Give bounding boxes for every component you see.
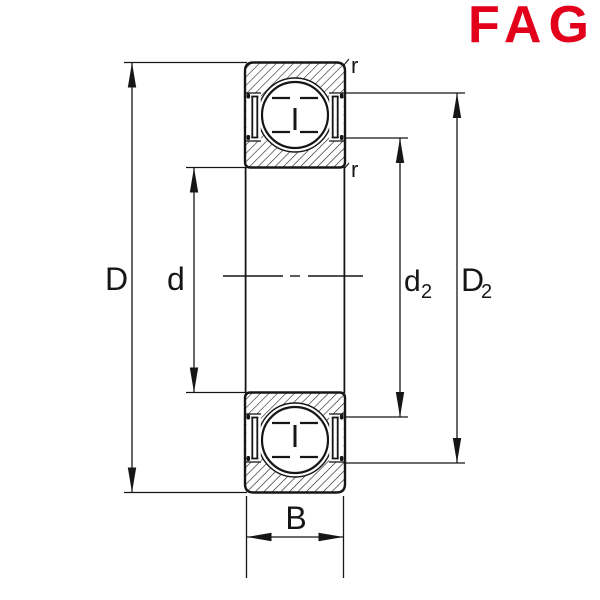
lower-right-shield-slot: [329, 414, 343, 462]
arrow-up-icon: [128, 63, 136, 88]
label-r-outer: r: [351, 53, 358, 78]
arrow-down-icon: [128, 468, 136, 493]
fag-logo: FAG: [468, 0, 596, 51]
dimension-B: B: [247, 496, 344, 578]
bearing-cross-section-diagram: D d d 2 D 2: [0, 0, 600, 600]
label-D: D: [105, 261, 128, 297]
dimension-d: d: [167, 168, 247, 393]
arrow-down-icon: [396, 392, 404, 417]
drawing-canvas: FAG: [0, 0, 600, 600]
arrow-right-icon: [319, 533, 344, 541]
lower-ring-section: [245, 393, 345, 493]
upper-right-shield-slot: [329, 93, 343, 141]
r-leader-outer: [344, 59, 349, 65]
label-B: B: [285, 500, 306, 536]
arrow-down-icon: [453, 438, 461, 463]
bearing-cross-section: [223, 63, 363, 493]
arrow-up-icon: [190, 168, 198, 193]
label-d: d: [167, 261, 185, 297]
lower-left-shield-slot: [246, 414, 260, 462]
upper-ring-section: [245, 63, 345, 168]
label-r-inner: r: [351, 157, 358, 182]
arrow-left-icon: [247, 533, 272, 541]
arrow-down-icon: [190, 368, 198, 393]
upper-left-shield-slot: [246, 93, 260, 141]
label-d2-sub: 2: [421, 281, 432, 303]
ring-face-lines: [246, 167, 345, 393]
arrow-up-icon: [396, 138, 404, 163]
label-d2: d: [404, 265, 421, 298]
arrow-up-icon: [453, 93, 461, 118]
label-D2-sub: 2: [481, 281, 492, 303]
